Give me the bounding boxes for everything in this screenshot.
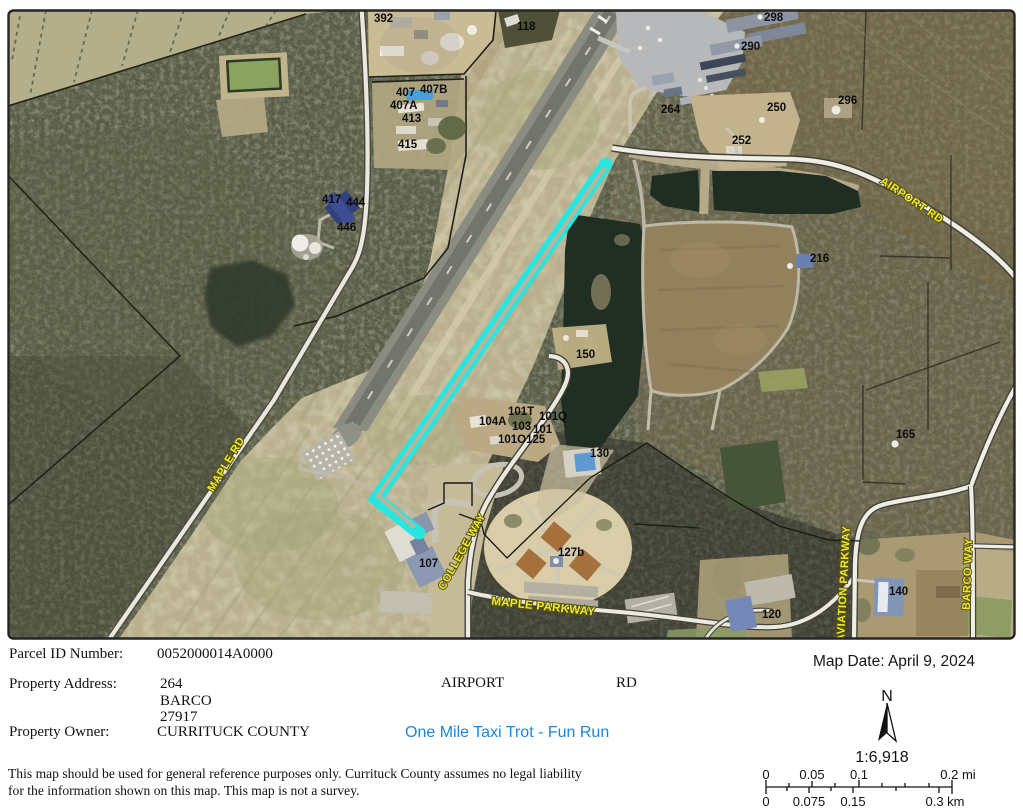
svg-text:392: 392 [374,13,393,25]
svg-text:107: 107 [419,558,438,570]
svg-text:0.15: 0.15 [840,794,865,809]
svg-text:130: 130 [590,448,609,460]
svg-text:413: 413 [402,113,421,125]
svg-text:N: N [881,688,893,705]
svg-text:118: 118 [517,21,536,33]
svg-text:290: 290 [741,41,760,53]
svg-text:101O125: 101O125 [498,434,546,446]
svg-text:407A: 407A [390,100,418,112]
svg-text:101T: 101T [508,406,534,418]
svg-text:264: 264 [661,104,681,116]
svg-text:101Q: 101Q [539,411,567,423]
svg-text:0.075: 0.075 [793,794,826,809]
svg-text:444: 444 [346,197,366,209]
svg-text:127b: 127b [558,547,584,559]
svg-text:446: 446 [337,222,356,234]
svg-text:296: 296 [838,95,857,107]
svg-text:0.2 mi: 0.2 mi [940,767,976,782]
svg-text:216: 216 [810,253,829,265]
svg-text:407: 407 [396,87,415,99]
svg-text:140: 140 [889,586,908,598]
svg-text:0.3 km: 0.3 km [925,794,964,809]
svg-text:0.05: 0.05 [799,767,824,782]
svg-text:415: 415 [398,139,418,151]
svg-text:298: 298 [764,12,784,24]
svg-text:120: 120 [762,609,781,621]
svg-text:165: 165 [896,429,916,441]
svg-text:407B: 407B [420,84,448,96]
svg-text:150: 150 [576,349,595,361]
svg-text:417: 417 [322,194,341,206]
svg-text:252: 252 [732,135,751,147]
svg-text:103: 103 [512,421,531,433]
svg-text:1:6,918: 1:6,918 [855,749,908,766]
svg-text:0.1: 0.1 [850,767,868,782]
svg-text:0: 0 [762,794,769,809]
svg-text:BARCO WAY: BARCO WAY [961,538,976,610]
svg-text:0: 0 [762,767,769,782]
svg-text:104A: 104A [479,416,507,428]
svg-text:250: 250 [767,102,786,114]
